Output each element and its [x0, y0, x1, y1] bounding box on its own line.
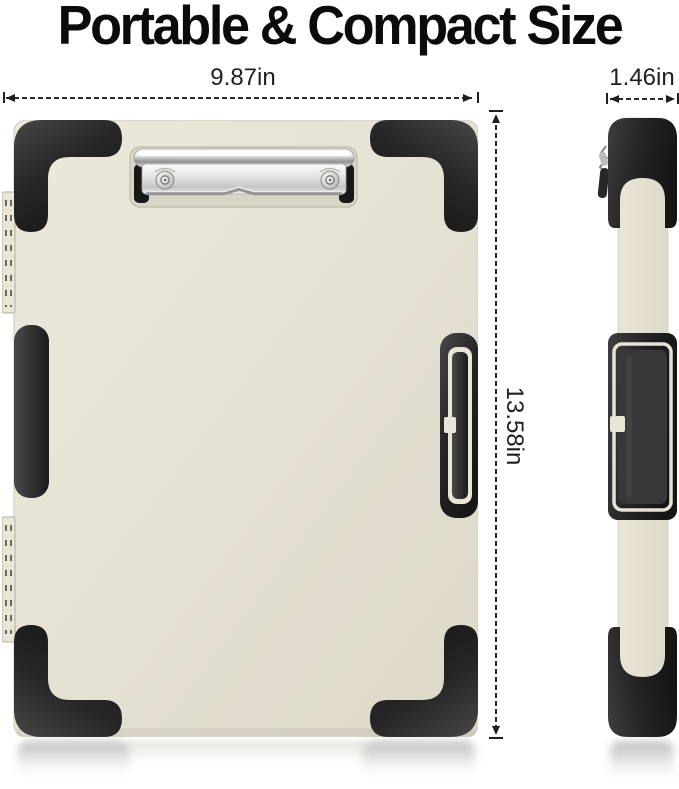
reflection-front-center	[128, 741, 365, 767]
side-latch-tab	[610, 416, 625, 432]
height-arrow-down-icon	[492, 726, 500, 735]
latch-tab	[444, 417, 456, 433]
width-dimension-line	[6, 97, 472, 99]
depth-dimension-line	[610, 98, 674, 100]
reflection-side	[610, 741, 674, 785]
side-latch-face	[618, 350, 667, 504]
clip-roll-highlight	[138, 151, 350, 156]
depth-arrow-left-icon	[610, 95, 619, 103]
depth-arrow-right-icon	[666, 95, 675, 103]
height-dimension-label: 13.58in	[500, 387, 528, 466]
reflection-front-left	[18, 741, 130, 781]
side-grip-bar	[14, 325, 49, 498]
depth-dimension-label: 1.46in	[609, 64, 674, 92]
storage-latch	[440, 333, 478, 518]
product-size-figure: Portable & Compact Size 9.87in 1.46in 13…	[0, 0, 679, 789]
width-dimension-tick-right	[477, 92, 479, 103]
width-arrow-right-icon	[463, 94, 472, 102]
width-arrow-left-icon	[6, 94, 15, 102]
hinge-top	[2, 192, 15, 313]
height-dimension-tick-bottom	[489, 737, 503, 739]
side-latch-block	[608, 333, 677, 520]
height-dimension-line	[495, 117, 497, 729]
clipboard-side-view	[592, 116, 679, 739]
clipboard-front-view	[2, 120, 478, 737]
width-dimension-tick-left	[3, 92, 5, 103]
height-dimension-tick-top	[489, 110, 503, 112]
hinge-bottom	[2, 517, 15, 642]
front-body	[14, 120, 478, 737]
reflection-front-right	[363, 741, 475, 781]
page-title: Portable & Compact Size	[17, 0, 662, 55]
width-dimension-label: 9.87in	[210, 64, 275, 92]
side-latch-streak	[626, 356, 632, 498]
depth-dimension-tick-left	[606, 93, 608, 104]
height-arrow-up-icon	[492, 114, 500, 123]
clip-hook-icon	[597, 146, 609, 198]
